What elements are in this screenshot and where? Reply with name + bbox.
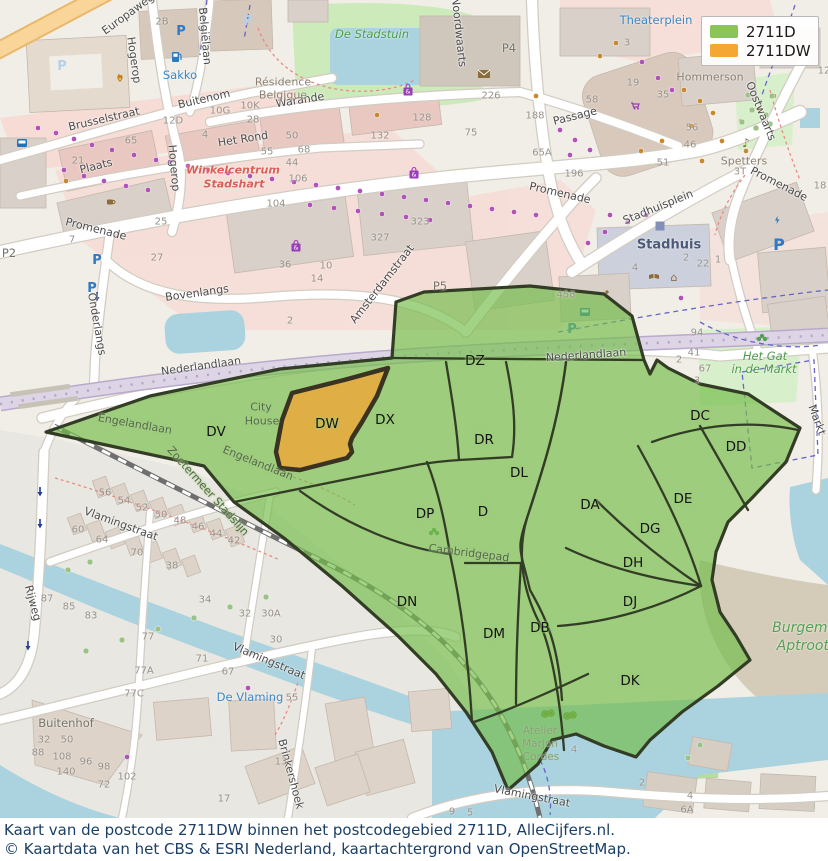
shop-dot <box>131 152 136 157</box>
legend-swatch-2711d <box>710 25 738 38</box>
tree-dot <box>749 107 755 113</box>
svg-text:P: P <box>87 281 97 296</box>
shop-dot <box>401 194 406 199</box>
shop-dot <box>427 217 432 222</box>
shop-dot <box>655 75 660 80</box>
amenity-dot <box>638 148 643 153</box>
parking-icon: P <box>87 281 97 296</box>
shop-dot <box>643 212 648 217</box>
shop-dot <box>53 130 58 135</box>
shop-dot <box>355 208 360 213</box>
svg-text:♪: ♪ <box>742 136 750 150</box>
shop-dot <box>71 136 76 141</box>
svg-text:&: & <box>405 88 410 96</box>
parking-pale-icon: P <box>243 14 253 29</box>
tree-dot <box>155 626 161 632</box>
tree-dot <box>767 121 773 127</box>
tree-dot <box>685 755 691 761</box>
shop-dot <box>587 147 592 152</box>
shop-dot <box>313 182 318 187</box>
svg-text:P: P <box>176 24 186 39</box>
shop-dot <box>625 219 630 224</box>
svg-text:P: P <box>92 253 102 268</box>
shop-dot <box>489 206 494 211</box>
tree-dot <box>753 125 759 131</box>
amenity-dot <box>699 158 704 163</box>
shop-dot <box>445 200 450 205</box>
shop-dot <box>307 202 312 207</box>
shop-dot <box>423 197 428 202</box>
shop-dot <box>167 159 172 164</box>
amenity-dot <box>374 112 379 117</box>
shop-dot <box>379 191 384 196</box>
svg-text:P: P <box>773 235 785 254</box>
amenity-dot <box>613 40 618 45</box>
legend-swatch-2711dw <box>710 44 738 57</box>
amenity-dot <box>743 148 748 153</box>
legend-label-2711dw: 2711DW <box>746 42 811 60</box>
shop-dot <box>379 211 384 216</box>
parking-icon: P <box>92 253 102 268</box>
tree-dot <box>191 615 197 621</box>
tree-dot <box>757 99 763 105</box>
parking-pale-icon: P <box>57 59 67 74</box>
amenity-dot <box>719 138 724 143</box>
shop-dot <box>335 185 340 190</box>
shop-dot <box>123 183 128 188</box>
museum-icon: ⌂ <box>671 271 678 284</box>
parking-icon: P <box>176 24 186 39</box>
amenity-dot <box>659 138 664 143</box>
bus-icon <box>17 139 27 147</box>
amenity-dot <box>597 53 602 58</box>
shop-dot <box>533 212 538 217</box>
tree-dot <box>119 637 125 643</box>
svg-text:⌂: ⌂ <box>671 271 678 284</box>
shop-dot <box>585 240 590 245</box>
shop-dot <box>511 209 516 214</box>
shop-dot <box>557 127 562 132</box>
square-icon <box>656 222 665 231</box>
amenity-dot <box>710 110 715 115</box>
shop-dot <box>101 178 106 183</box>
tree-dot <box>227 604 233 610</box>
shop-dot <box>467 203 472 208</box>
shop-dot <box>35 125 40 130</box>
parking-lg-icon: P <box>773 235 785 254</box>
shop-dot <box>639 59 644 64</box>
tree-dot <box>763 112 769 118</box>
tree-dot <box>739 119 745 125</box>
shop-dot <box>81 173 86 178</box>
legend-label-2711d: 2711D <box>746 23 796 41</box>
shop-dot <box>185 163 190 168</box>
caption-line-1: Kaart van de postcode 2711DW binnen het … <box>4 821 828 840</box>
shop-dot <box>89 142 94 147</box>
svg-text:P: P <box>243 14 253 29</box>
shop-dot <box>403 214 408 219</box>
tree-dot <box>263 594 269 600</box>
shop-dot <box>607 212 612 217</box>
legend-row-2711dw: 2711DW <box>710 41 810 60</box>
amenity-dot <box>533 93 538 98</box>
svg-text:&: & <box>411 171 416 179</box>
legend-row-2711d: 2711D <box>710 22 810 41</box>
shop-dot <box>247 173 252 178</box>
shop-dot <box>61 167 66 172</box>
shop-dot <box>153 157 158 162</box>
caption-line-2: © Kaartdata van het CBS & ESRI Nederland… <box>4 840 828 859</box>
amenity-dot <box>681 87 686 92</box>
shop-dot <box>567 152 572 157</box>
amenity-dot <box>63 178 68 183</box>
shop-dot <box>678 295 683 300</box>
shop-dot <box>225 170 230 175</box>
shop-dot <box>357 188 362 193</box>
shop-dot <box>145 187 150 192</box>
map-base: PPPPPPP&&&♪⌂ <box>0 0 828 818</box>
tree-dot <box>87 559 93 565</box>
note-icon: ♪ <box>742 136 750 150</box>
svg-text:&: & <box>293 244 298 252</box>
amenity-dot <box>756 106 761 111</box>
tree-dot <box>745 92 751 98</box>
shop-dot <box>269 176 274 181</box>
tree-dot <box>65 567 71 573</box>
amenity-dot <box>688 123 693 128</box>
postcode-map-figure: PPPPPPP&&&♪⌂ <box>0 0 828 861</box>
shop-dot <box>669 87 674 92</box>
mail-icon <box>478 70 490 78</box>
tree-dot <box>83 648 89 654</box>
map-caption: Kaart van de postcode 2711DW binnen het … <box>0 818 828 861</box>
shop-dot <box>245 685 250 690</box>
tree-dot <box>697 742 703 748</box>
amenity-dot <box>697 98 702 103</box>
shop-dot <box>109 147 114 152</box>
shop-dot <box>602 229 607 234</box>
map-canvas: PPPPPPP&&&♪⌂ <box>0 0 828 818</box>
map-legend: 2711D 2711DW <box>701 16 819 66</box>
shop-dot <box>572 137 577 142</box>
shop-dot <box>331 205 336 210</box>
shop-dot <box>205 167 210 172</box>
shop-dot <box>291 179 296 184</box>
shop-dot <box>124 754 129 759</box>
svg-text:P: P <box>57 59 67 74</box>
tree-dot <box>769 93 775 99</box>
